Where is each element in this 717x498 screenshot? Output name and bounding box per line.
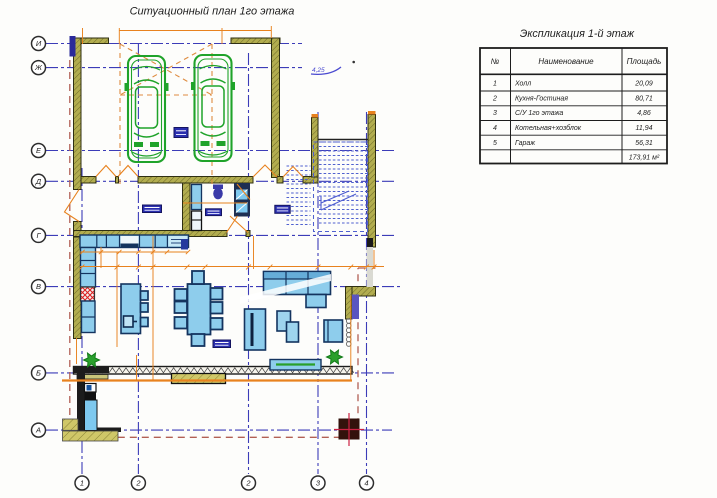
svg-text:Наименование: Наименование — [538, 57, 594, 66]
svg-text:20,09: 20,09 — [634, 81, 653, 88]
svg-text:2: 2 — [492, 96, 497, 103]
svg-text:1: 1 — [80, 479, 84, 488]
svg-text:Гараж: Гараж — [515, 140, 536, 147]
svg-text:1: 1 — [493, 81, 497, 88]
svg-text:80,71: 80,71 — [635, 96, 653, 103]
svg-text:Площадь: Площадь — [627, 57, 662, 66]
svg-text:А: А — [35, 426, 41, 435]
svg-text:4,86: 4,86 — [637, 110, 651, 117]
svg-text:Ж: Ж — [34, 63, 43, 72]
svg-text:2: 2 — [245, 479, 251, 488]
svg-text:2: 2 — [135, 479, 141, 488]
svg-text:Кухня-Гостиная: Кухня-Гостиная — [515, 96, 568, 103]
svg-text:4,25: 4,25 — [312, 67, 325, 74]
svg-text:Д: Д — [35, 177, 42, 186]
svg-text:Б: Б — [36, 369, 41, 378]
svg-text:Ситуационный план 1го этажа: Ситуационный план 1го этажа — [130, 6, 295, 18]
svg-text:В: В — [36, 282, 41, 291]
svg-text:5: 5 — [493, 140, 497, 147]
svg-text:И: И — [36, 39, 42, 48]
svg-text:Холл: Холл — [514, 81, 531, 88]
svg-text:56,31: 56,31 — [635, 140, 653, 147]
svg-text:Котельная+хозблок: Котельная+хозблок — [515, 124, 582, 132]
svg-text:3: 3 — [493, 110, 497, 117]
svg-text:Экспликация 1-й этаж: Экспликация 1-й этаж — [520, 28, 635, 40]
svg-text:11,94: 11,94 — [636, 125, 653, 132]
svg-text:№: № — [491, 57, 500, 66]
svg-text:4: 4 — [364, 479, 368, 488]
svg-text:4: 4 — [493, 125, 497, 132]
svg-text:173,91 м²: 173,91 м² — [629, 155, 660, 162]
svg-text:С/У 1го этажа: С/У 1го этажа — [515, 110, 563, 117]
